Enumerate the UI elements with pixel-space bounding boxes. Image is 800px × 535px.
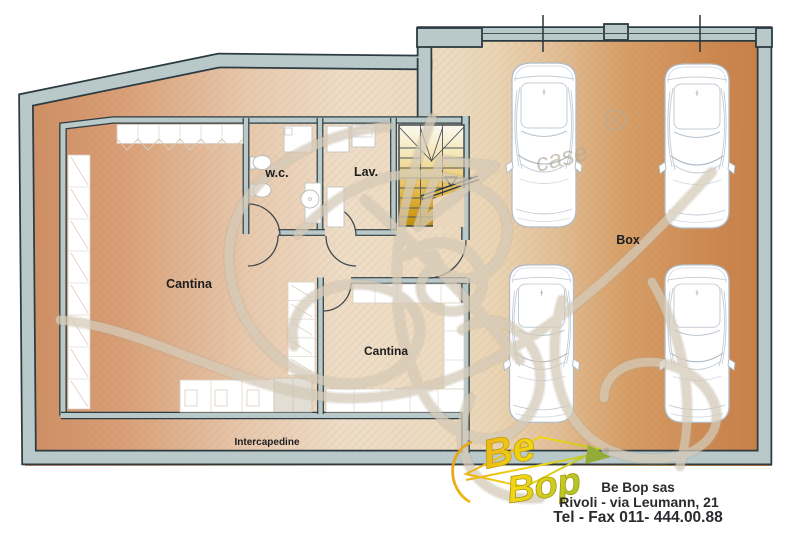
svg-text:Intercapedine: Intercapedine (234, 437, 299, 448)
svg-text:w.c.: w.c. (264, 166, 288, 180)
svg-text:Lav.: Lav. (354, 165, 378, 179)
svg-text:Box: Box (616, 233, 640, 247)
svg-text:Tel - Fax 011- 444.00.88: Tel - Fax 011- 444.00.88 (553, 509, 723, 526)
svg-text:Cantina: Cantina (166, 277, 213, 291)
svg-text:®: ® (604, 447, 610, 455)
svg-text:Be Bop sas: Be Bop sas (601, 480, 675, 495)
svg-text:Rivoli - via Leumann, 21: Rivoli - via Leumann, 21 (559, 494, 719, 510)
svg-text:Cantina: Cantina (364, 344, 408, 358)
